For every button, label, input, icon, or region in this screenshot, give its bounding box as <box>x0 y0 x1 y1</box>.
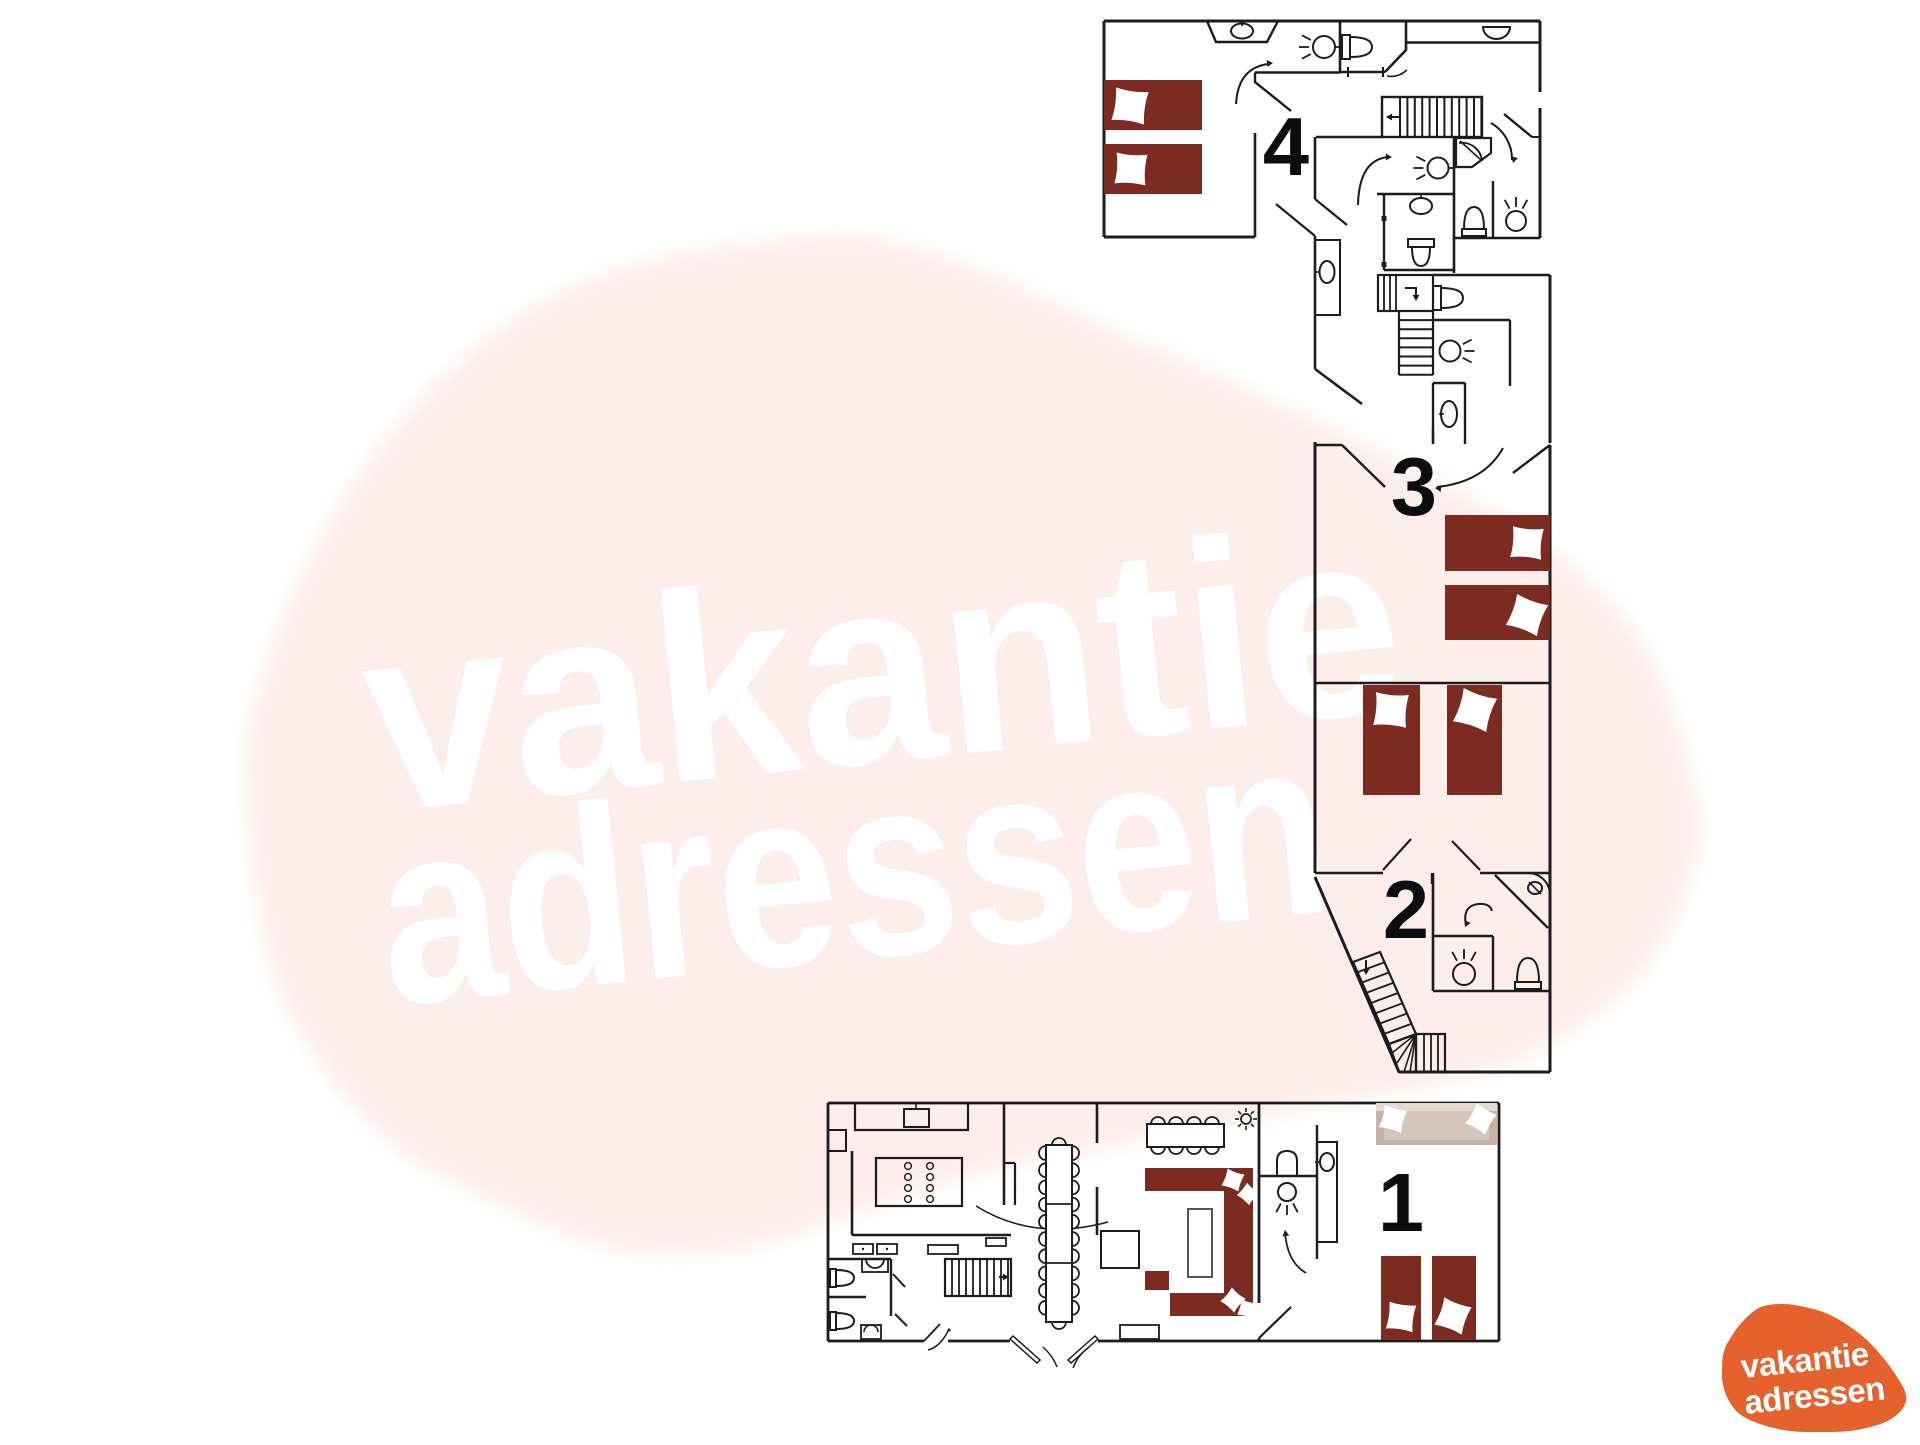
svg-text:3: 3 <box>1391 440 1437 533</box>
svg-text:1: 1 <box>1378 1156 1424 1249</box>
svg-text:4: 4 <box>1263 100 1309 193</box>
svg-text:2: 2 <box>1383 863 1429 956</box>
